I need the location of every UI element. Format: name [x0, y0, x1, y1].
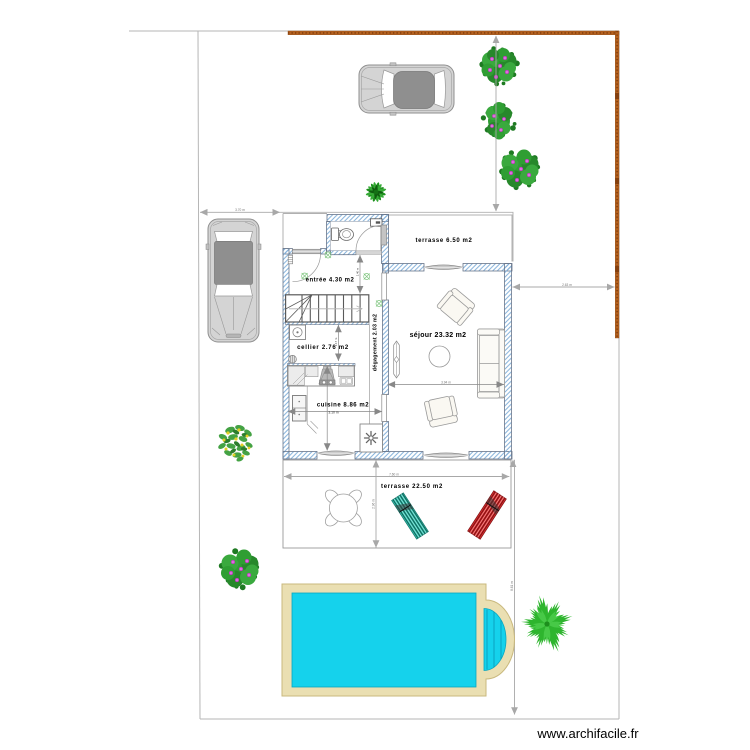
- svg-text:2.96 m: 2.96 m: [371, 499, 375, 509]
- svg-text:cellier 2.76 m2: cellier 2.76 m2: [297, 345, 349, 351]
- svg-text:entrée 4.30 m2: entrée 4.30 m2: [306, 278, 355, 284]
- svg-text:dégagement 2.03 m2: dégagement 2.03 m2: [373, 314, 379, 372]
- svg-text:7.60 m: 7.60 m: [389, 473, 399, 477]
- svg-text:3.10 m: 3.10 m: [328, 410, 339, 414]
- svg-text:séjour 23.32 m2: séjour 23.32 m2: [410, 332, 467, 339]
- svg-text:3.70 m: 3.70 m: [235, 208, 245, 212]
- svg-text:www.archifacile.fr: www.archifacile.fr: [536, 726, 639, 741]
- svg-text:8.61 m: 8.61 m: [510, 581, 514, 591]
- svg-text:cuisine 8.86 m2: cuisine 8.86 m2: [317, 402, 369, 408]
- svg-text:1.40 m: 1.40 m: [356, 267, 360, 276]
- svg-text:terrasse 6.50 m2: terrasse 6.50 m2: [416, 238, 473, 244]
- svg-text:3.94 m: 3.94 m: [441, 381, 451, 385]
- svg-text:2.63 m: 2.63 m: [562, 283, 572, 287]
- svg-text:terrasse 22.50 m2: terrasse 22.50 m2: [381, 484, 443, 490]
